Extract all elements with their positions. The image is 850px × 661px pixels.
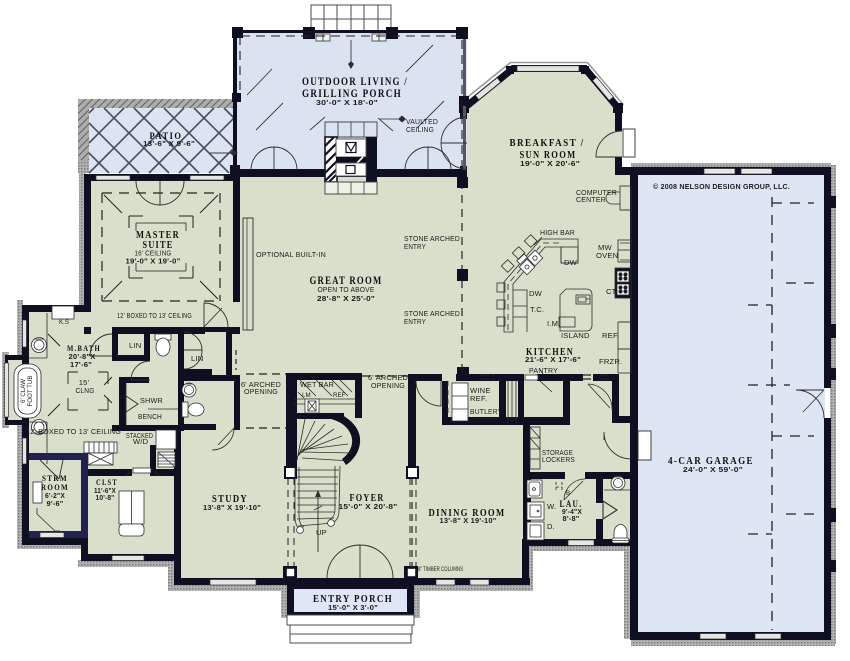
svg-text:15'-0" X 3'-0": 15'-0" X 3'-0" [328, 603, 378, 612]
svg-text:HIGH BAR: HIGH BAR [540, 228, 575, 237]
svg-text:FRZR.: FRZR. [599, 357, 622, 366]
svg-text:6' CLAW: 6' CLAW [20, 379, 27, 403]
svg-text:OUTDOOR LIVING /: OUTDOOR LIVING / [302, 76, 408, 88]
svg-text:SHWR: SHWR [140, 396, 163, 405]
svg-text:T.C.: T.C. [530, 305, 544, 314]
svg-text:LIN: LIN [191, 354, 203, 363]
svg-text:24'-0" X 59'-0": 24'-0" X 59'-0" [683, 465, 743, 474]
svg-text:30'-0" X 18'-0": 30'-0" X 18'-0" [316, 98, 378, 107]
svg-text:OPTIONAL BUILT-IN: OPTIONAL BUILT-IN [256, 250, 326, 259]
svg-text:8" TIMBER COLUMNS: 8" TIMBER COLUMNS [418, 566, 463, 573]
svg-text:PANTRY: PANTRY [470, 415, 498, 424]
svg-text:LIN: LIN [129, 341, 141, 350]
svg-text:REF.: REF. [602, 331, 619, 340]
svg-text:28'-8" X 25'-0": 28'-8" X 25'-0" [317, 294, 375, 303]
svg-text:21'-6" X 17'-6": 21'-6" X 17'-6" [525, 355, 581, 364]
svg-text:OPENING: OPENING [244, 387, 278, 396]
svg-text:12' BOXED TO 13' CEILING: 12' BOXED TO 13' CEILING [26, 427, 121, 436]
svg-text:REF.: REF. [470, 394, 487, 403]
svg-text:OVEN: OVEN [596, 251, 618, 260]
svg-text:LOCKERS: LOCKERS [542, 455, 575, 464]
svg-text:W/D: W/D [133, 437, 149, 446]
svg-text:19'-0" X 19'-0": 19'-0" X 19'-0" [126, 257, 181, 266]
svg-text:I.M.: I.M. [547, 319, 560, 328]
svg-text:CT: CT [606, 287, 617, 296]
svg-text:15'-0" X 20'-8": 15'-0" X 20'-8" [339, 502, 398, 511]
svg-text:OPEN TO ABOVE: OPEN TO ABOVE [318, 285, 375, 294]
svg-text:ENTRY: ENTRY [404, 242, 426, 251]
svg-text:12' BOXED TO 13' CEILING: 12' BOXED TO 13' CEILING [117, 311, 192, 320]
svg-text:UP: UP [316, 528, 327, 537]
svg-text:© 2008 NELSON DESIGN GROUP, LL: © 2008 NELSON DESIGN GROUP, LLC. [653, 182, 790, 191]
svg-text:OPENING: OPENING [371, 381, 405, 390]
svg-text:W.: W. [547, 502, 556, 511]
svg-text:CENTER: CENTER [576, 195, 606, 204]
svg-text:WET BAR: WET BAR [300, 380, 334, 389]
svg-text:BENCH: BENCH [138, 412, 162, 421]
svg-text:I.M: I.M [302, 392, 311, 399]
svg-text:PANTRY: PANTRY [529, 366, 558, 375]
svg-text:8'-8": 8'-8" [563, 514, 580, 523]
svg-text:B: B [566, 490, 570, 497]
svg-text:DW: DW [529, 289, 543, 298]
svg-text:FOOT TUB: FOOT TUB [27, 375, 34, 406]
svg-text:DW: DW [564, 258, 578, 267]
svg-text:13'-6" X 9'-6": 13'-6" X 9'-6" [143, 139, 195, 148]
svg-text:ENTRY: ENTRY [404, 317, 426, 326]
svg-text:19'-0" X 20'-6": 19'-0" X 20'-6" [520, 159, 580, 168]
svg-text:17'-6": 17'-6" [70, 360, 92, 369]
svg-text:13'-8" X 19'-10": 13'-8" X 19'-10" [203, 503, 261, 512]
svg-text:REF: REF [333, 392, 346, 399]
svg-text:ISLAND: ISLAND [561, 331, 590, 340]
svg-text:13'-8" X 19'-10": 13'-8" X 19'-10" [440, 516, 497, 525]
svg-text:D.: D. [547, 522, 555, 531]
svg-text:CEILING: CEILING [406, 125, 434, 134]
svg-text:9'-6": 9'-6" [47, 499, 64, 508]
svg-text:CLNG: CLNG [76, 386, 95, 395]
svg-text:BREAKFAST /: BREAKFAST / [510, 138, 585, 149]
svg-text:K.S: K.S [59, 319, 69, 326]
svg-text:10'-8": 10'-8" [96, 493, 115, 502]
